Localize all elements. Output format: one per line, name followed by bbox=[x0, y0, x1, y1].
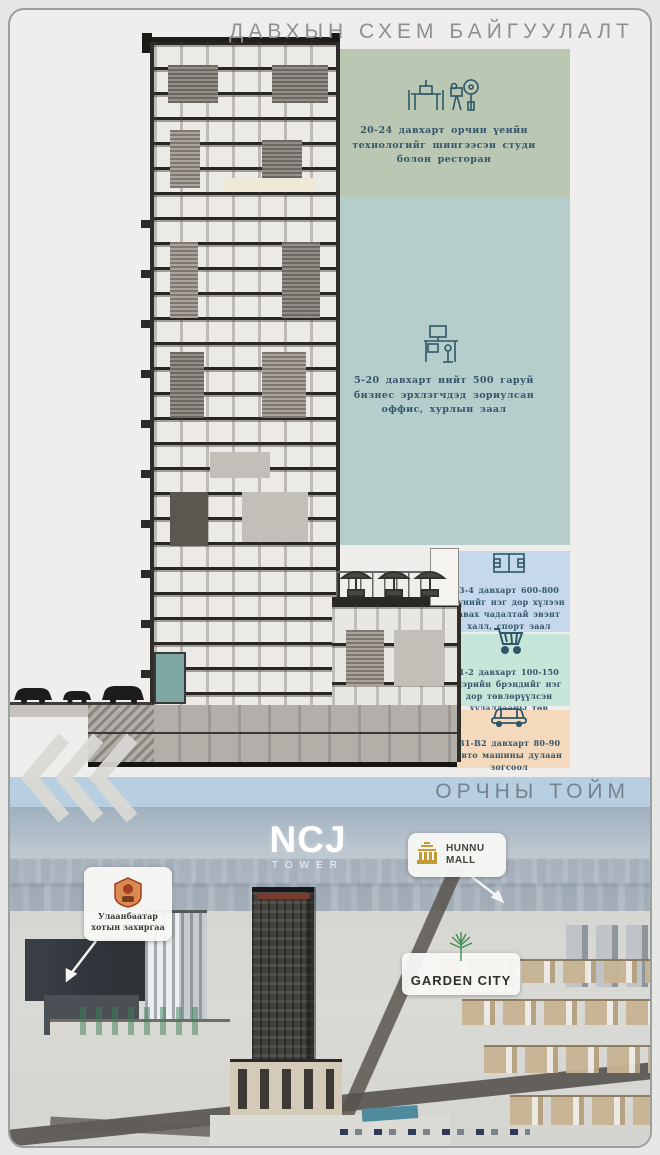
building-panel bbox=[262, 352, 306, 418]
terrace-umbrellas bbox=[338, 566, 450, 600]
floor-band-20-24: 20-24 давхарт орчин үеийн технологийг ши… bbox=[318, 49, 570, 197]
building-panel bbox=[170, 352, 204, 418]
page-title: ДАВХЫН СХЕМ БАЙГУУЛАЛТ bbox=[229, 20, 634, 44]
building-balcony-fins bbox=[141, 220, 150, 690]
building-panel bbox=[170, 242, 198, 318]
label-hunnu-mall: HUNNU MALL bbox=[408, 833, 506, 877]
building-panel bbox=[282, 242, 320, 318]
building-panel bbox=[224, 178, 316, 192]
logo-name: NCJ bbox=[248, 821, 368, 858]
glass-elevator bbox=[154, 652, 186, 704]
sport-hall-icon bbox=[492, 552, 526, 579]
overview-title: ОРЧНЫ ТОЙМ bbox=[435, 780, 630, 804]
office-desk-icon bbox=[422, 324, 466, 369]
floor-band-1-2: 1-2 давхарт 100-150 нэрийн брэндийг нэг … bbox=[448, 634, 570, 706]
label-text: Улаанбаатар хотын захиргаа bbox=[88, 911, 168, 932]
label-text: HUNNU MALL bbox=[446, 843, 494, 868]
label-garden-city: GARDEN CITY bbox=[402, 953, 520, 995]
floor-band-b1-b2: B1-B2 давхарт 80-90 авто машины дулаан з… bbox=[448, 710, 570, 768]
street-cars bbox=[12, 680, 152, 704]
ncj-tower-logo: NCJ TOWER bbox=[248, 821, 368, 871]
building-panel bbox=[168, 65, 218, 103]
building-panel bbox=[272, 65, 328, 103]
floor-band-label: B1-B2 давхарт 80-90 авто машины дулаан з… bbox=[452, 737, 566, 773]
floor-band-label: 3-4 давхарт 600-800 хүнийг нэг дор хүлээ… bbox=[452, 584, 566, 632]
building-panel bbox=[394, 630, 444, 686]
building-panel bbox=[170, 492, 208, 546]
shopping-cart-icon bbox=[492, 626, 526, 661]
brochure-page: ДАВХЫН СХЕМ БАЙГУУЛАЛТ 20-24 давхарт орч… bbox=[0, 0, 660, 1155]
label-text: GARDEN CITY bbox=[402, 973, 520, 988]
hunnu-mall-icon bbox=[414, 842, 440, 868]
floor-band-label: 20-24 давхарт орчин үеийн технологийг ши… bbox=[338, 124, 550, 168]
floor-band-5-20: 5-20 давхарт нийт 500 гаруй бизнес эрхлэ… bbox=[318, 197, 570, 545]
content-card: ДАВХЫН СХЕМ БАЙГУУЛАЛТ 20-24 давхарт орч… bbox=[8, 8, 652, 1148]
chevron-left-icons bbox=[12, 732, 142, 824]
area-overview-photo: NCJ TOWER Улаанбаатар хотын захиргаа bbox=[10, 807, 650, 1146]
floor-band-label: 5-20 давхарт нийт 500 гаруй бизнес эрхлэ… bbox=[338, 374, 550, 418]
car-icon bbox=[489, 705, 529, 732]
floor-band-3-4: 3-4 давхарт 600-800 хүнийг нэг дор хүлээ… bbox=[448, 551, 570, 632]
logo-subtitle: TOWER bbox=[248, 860, 368, 871]
label-city-administration: Улаанбаатар хотын захиргаа bbox=[84, 867, 172, 941]
building-panel bbox=[346, 630, 384, 686]
building-panel bbox=[170, 130, 200, 188]
city-emblem-icon bbox=[111, 876, 145, 908]
basement-floor-line bbox=[88, 732, 457, 734]
building-panel bbox=[242, 492, 308, 542]
garden-city-tree-icon bbox=[444, 931, 478, 966]
studio-restaurant-icon bbox=[407, 78, 481, 119]
building-panel bbox=[210, 452, 270, 478]
